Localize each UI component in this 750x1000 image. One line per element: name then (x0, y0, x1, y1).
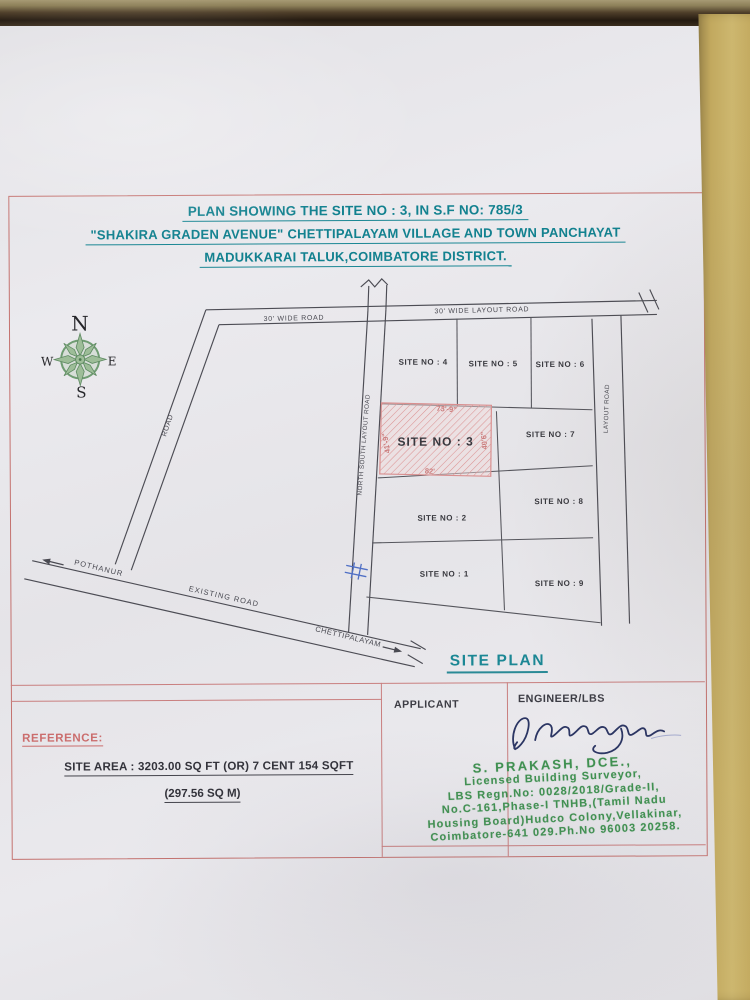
doc-title-text-1: PLAN SHOWING THE SITE NO : 3, IN S.F NO:… (183, 202, 528, 221)
compass-north-label: N (71, 311, 89, 335)
road-label-east: LAYOUT ROAD (603, 384, 611, 433)
reference-heading: REFERENCE: (22, 732, 103, 746)
road-break-southeast-icon (408, 641, 426, 664)
site-3-dim-bottom: 82' (425, 466, 436, 475)
road-north-stub (368, 285, 387, 311)
doc-title-text-3: MADUKKARAI TALUK,COIMBATORE DISTRICT. (199, 248, 512, 267)
applicant-label: APPLICANT (394, 698, 459, 710)
site-area-text: SITE AREA : 3203.00 SQ FT (OR) 7 CENT 15… (64, 759, 353, 776)
doc-title-line-1: PLAN SHOWING THE SITE NO : 3, IN S.F NO:… (8, 201, 702, 222)
doc-title-text-2: "SHAKIRA GRADEN AVENUE" CHETTIPALAYAM VI… (85, 225, 625, 245)
site-label-6: SITE NO : 6 (536, 360, 585, 369)
road-label-top-left: 30' WIDE ROAD (264, 315, 325, 323)
doc-title-line-3: MADUKKARAI TALUK,COIMBATORE DISTRICT. (9, 247, 703, 268)
road-west-inner (130, 325, 220, 570)
pothanur-arrow-icon (41, 557, 64, 568)
site-label-9: SITE NO : 9 (535, 579, 584, 588)
road-label-existing: EXISTING ROAD (188, 584, 260, 609)
site-label-4: SITE NO : 4 (399, 358, 448, 367)
engineer-label: ENGINEER/LBS (518, 693, 605, 705)
site-plan-caption: SITE PLAN (447, 652, 548, 674)
road-label-top-right: 30' WIDE LAYOUT ROAD (434, 306, 529, 315)
site-3-dim-top: 73'-9" (436, 404, 457, 414)
photo-background: PLAN SHOWING THE SITE NO : 3, IN S.F NO:… (0, 0, 750, 1000)
site-plan-document: PLAN SHOWING THE SITE NO : 3, IN S.F NO:… (0, 0, 750, 1000)
compass-south-label: S (76, 383, 86, 401)
site-label-5: SITE NO : 5 (469, 359, 518, 368)
doc-title-line-2: "SHAKIRA GRADEN AVENUE" CHETTIPALAYAM VI… (8, 224, 702, 245)
site-label-8: SITE NO : 8 (534, 497, 583, 506)
compass-rose-icon: N S W E (41, 311, 117, 401)
compass-east-label: E (108, 354, 117, 368)
road-break-north-icon (361, 279, 388, 287)
culvert-mark-icon (344, 561, 369, 581)
site-3-dim-right: 40'6" (479, 431, 489, 450)
site-label-1: SITE NO : 1 (420, 569, 469, 578)
road-label-chettipalayam: CHETTIPALAYAM (314, 624, 382, 649)
road-lines (23, 277, 661, 668)
road-label-west: ROAD (161, 413, 175, 437)
road-label-north-south: NORTH SOUTH LAYOUT ROAD (356, 394, 371, 496)
road-east-right (621, 316, 630, 624)
compass-west-label: W (41, 355, 54, 369)
road-east-left (592, 319, 602, 626)
engineer-stamp: S. PRAKASH, DCE., Licensed Building Surv… (390, 749, 719, 847)
site-area-metric: (297.56 SQ M) (164, 787, 240, 803)
site-label-3: SITE NO : 3 (397, 434, 473, 448)
road-west-outer (114, 310, 207, 564)
site-label-7: SITE NO : 7 (526, 430, 575, 439)
site-plan-drawing: N S W E (9, 273, 701, 697)
chettipalayam-arrow-icon (382, 644, 403, 655)
site-label-2: SITE NO : 2 (417, 513, 466, 522)
road-top-upper (206, 300, 657, 309)
